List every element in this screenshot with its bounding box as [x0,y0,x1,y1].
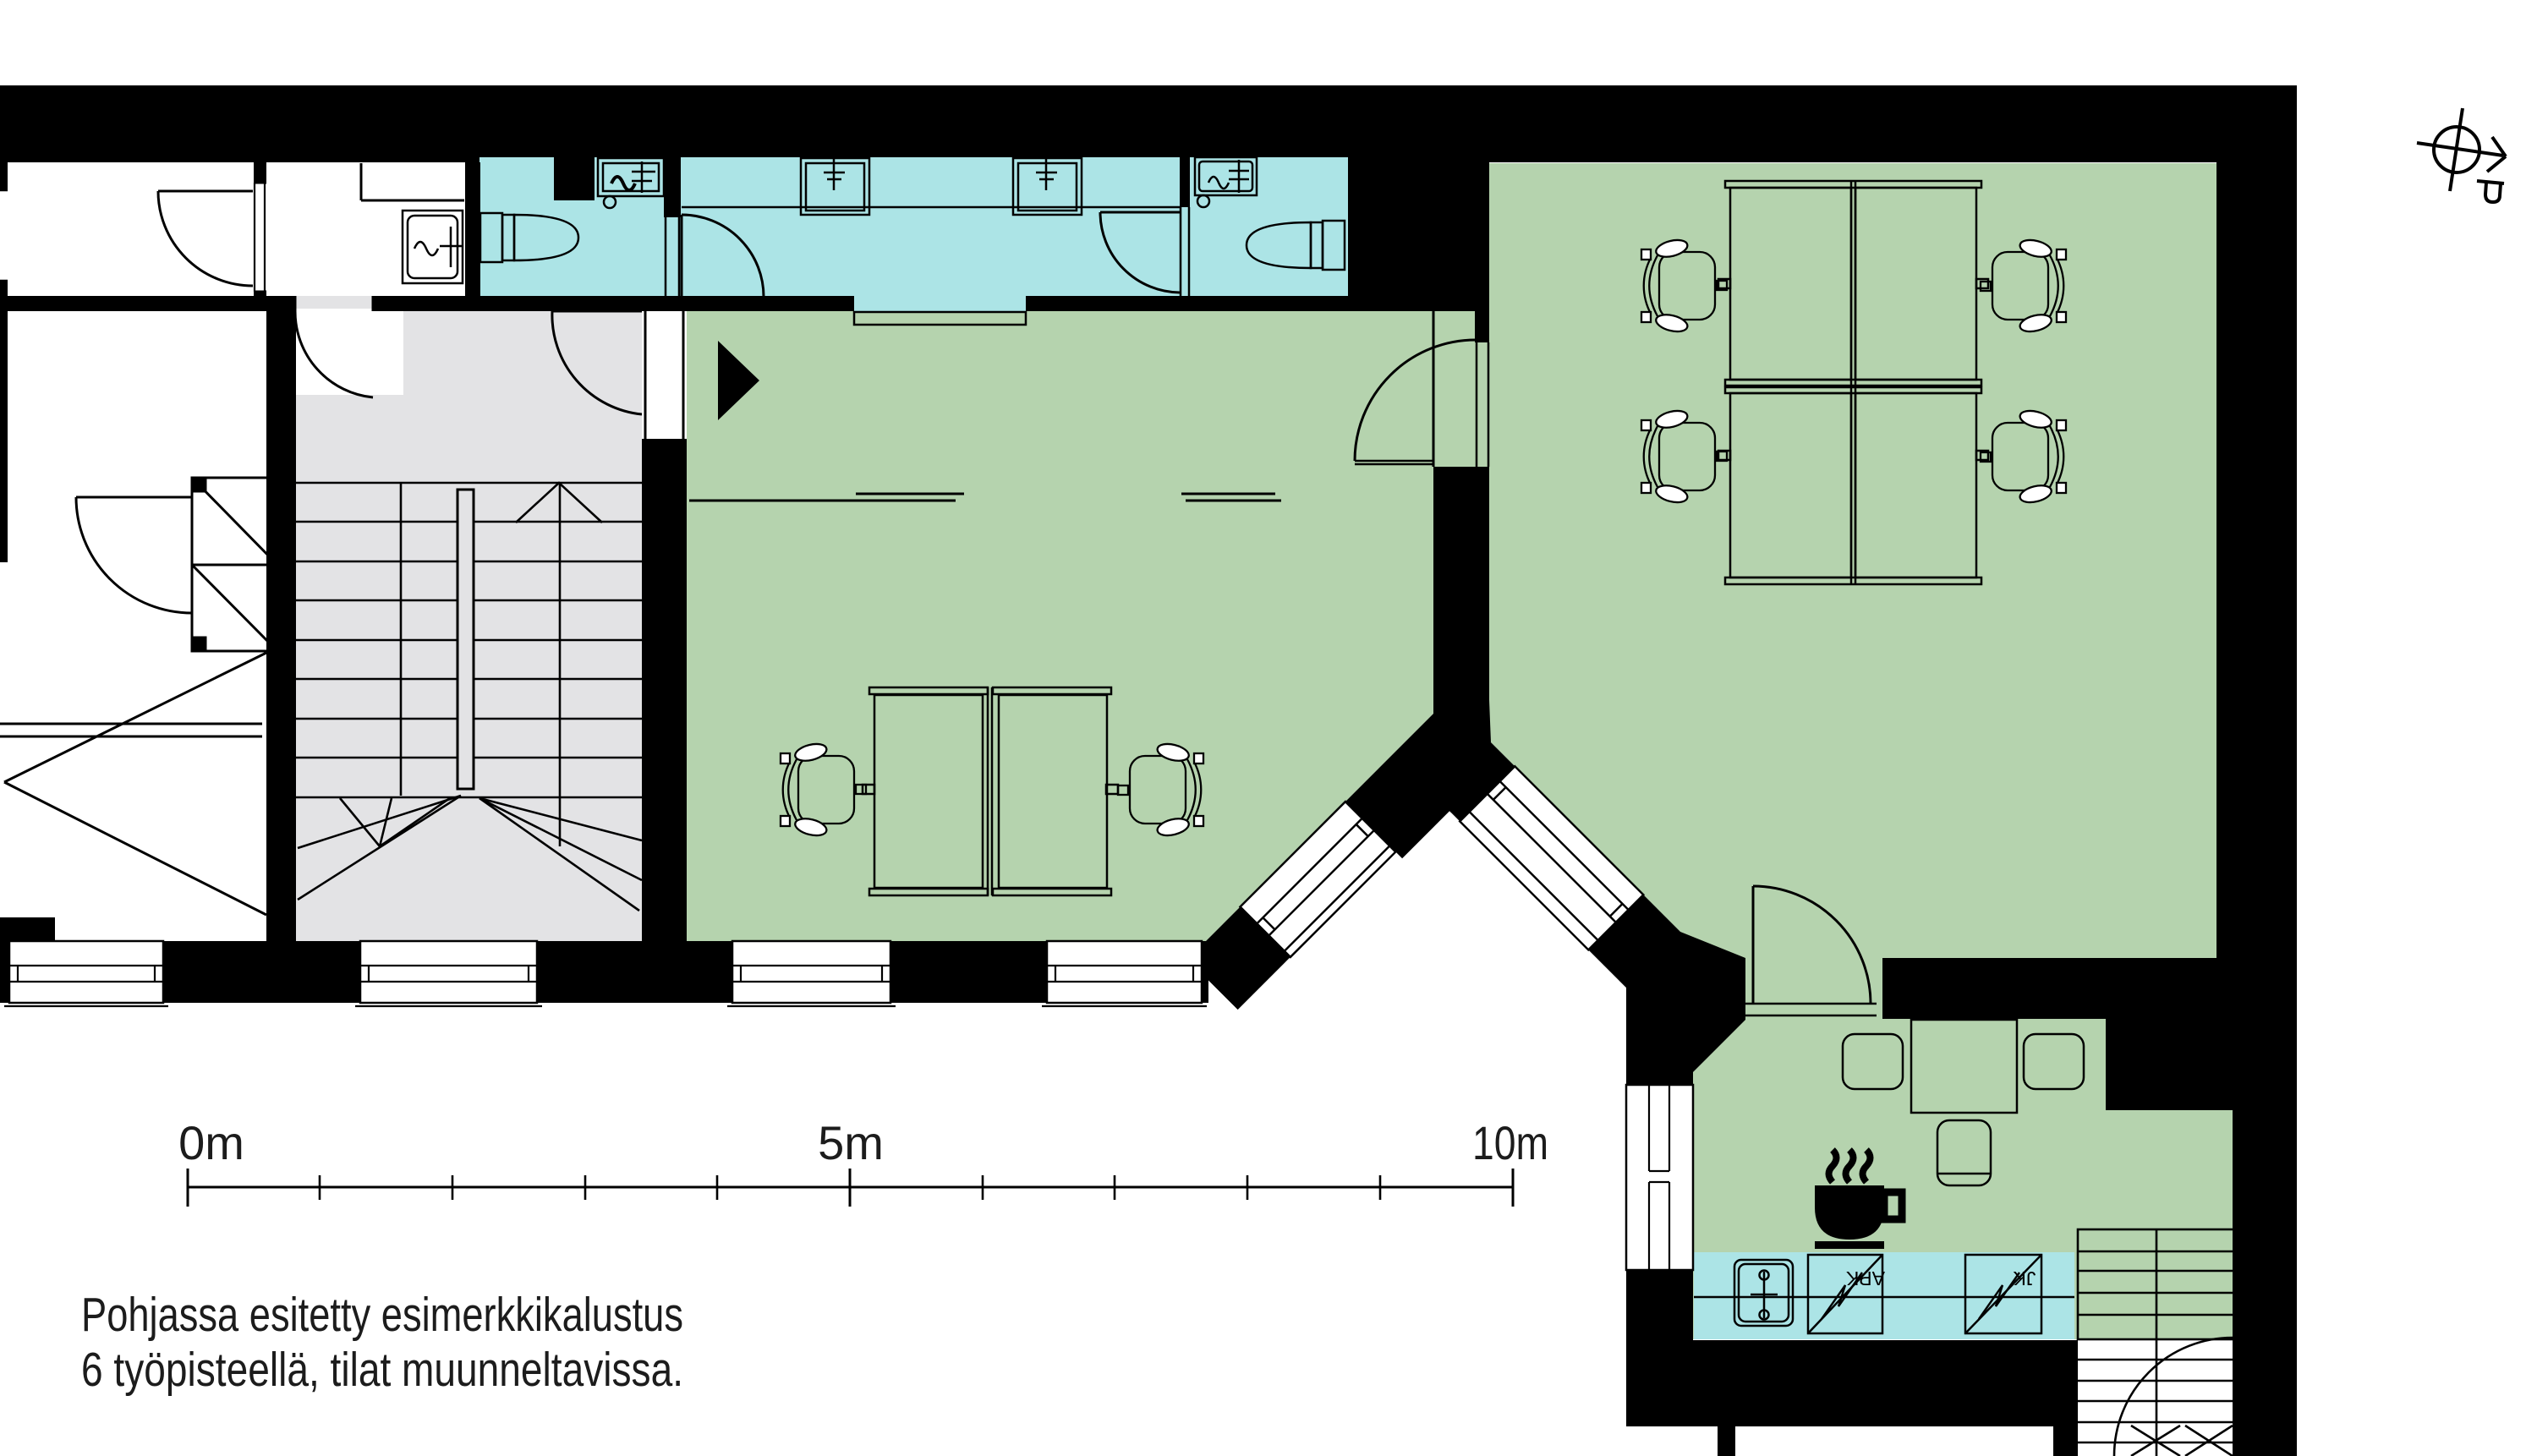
svg-text:JK: JK [2013,1267,2036,1289]
svg-text:0m: 0m [178,1116,244,1169]
svg-text:Pohjassa esitetty esimerkkikal: Pohjassa esitetty esimerkkikalustus [81,1288,683,1342]
svg-text:6 työpisteellä, tilat muunnelt: 6 työpisteellä, tilat muunneltavissa. [81,1343,683,1397]
svg-text:APK: APK [1845,1267,1885,1289]
svg-text:10m: 10m [1472,1116,1548,1169]
svg-text:5m: 5m [818,1116,884,1169]
